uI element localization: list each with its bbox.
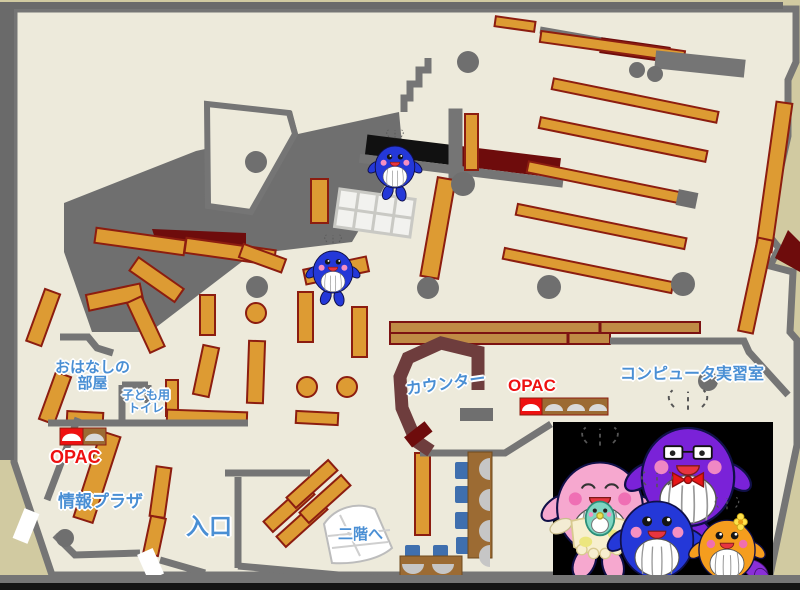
opac-left-station[interactable] xyxy=(60,428,106,445)
label-opac-right: OPAC xyxy=(508,377,556,395)
bookshelf xyxy=(465,114,478,170)
left-wall-band xyxy=(0,2,14,460)
label-toilet-line1: 子ども用 xyxy=(122,388,170,402)
counter-return-table xyxy=(460,408,493,421)
bottom-wall-band xyxy=(0,575,800,583)
bottom-edge-band xyxy=(0,583,800,590)
label-entrance: 入口 xyxy=(186,514,232,538)
label-joho-plaza: 情報プラザ xyxy=(58,493,143,511)
baby-whale-mascot xyxy=(586,502,615,536)
pillar xyxy=(245,151,267,173)
label-ohanashi-line1: おはなしの xyxy=(55,359,130,376)
label-computer-room: コンピュータ実習室 xyxy=(620,367,764,384)
wall-segment xyxy=(452,112,459,176)
top-wall-band xyxy=(0,2,783,9)
opac-right-station[interactable] xyxy=(520,398,608,415)
label-ohanashi-room: おはなしの 部屋 xyxy=(55,360,130,392)
label-opac-left: OPAC xyxy=(50,448,101,467)
label-kids-toilet: 子ども用 トイレ xyxy=(122,389,170,414)
label-stairs-up: 二階へ xyxy=(338,527,383,543)
label-ohanashi-line2: 部屋 xyxy=(55,376,130,392)
label-toilet-line2: トイレ xyxy=(122,402,170,415)
library-floor-map: おはなしの 部屋 子ども用 トイレ OPAC 情報プラザ 入口 二階へ カウンタ… xyxy=(0,0,800,590)
